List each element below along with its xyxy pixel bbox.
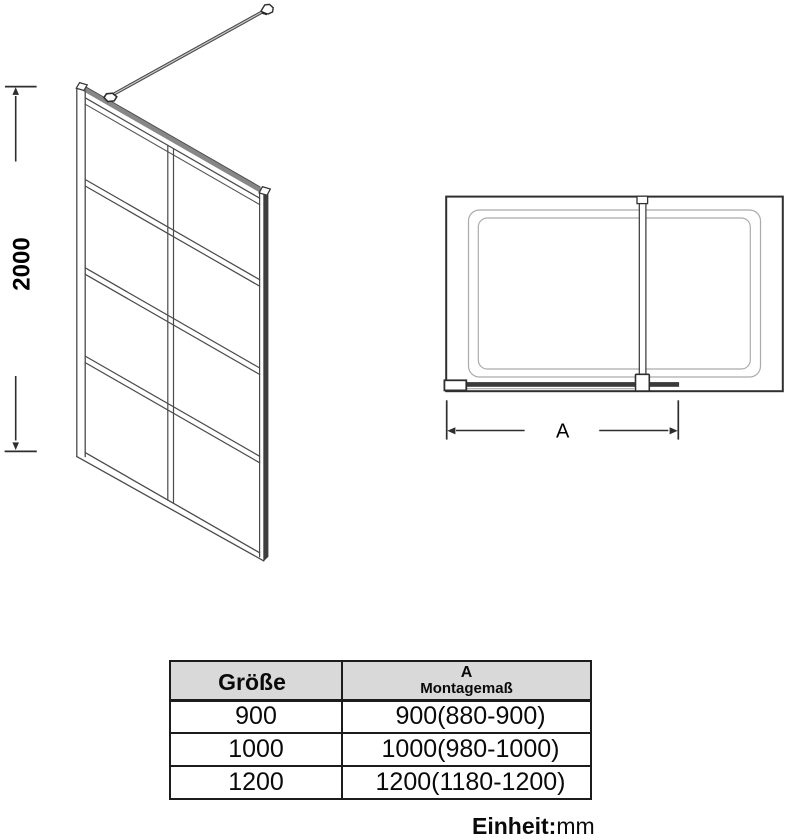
svg-text:2000: 2000 <box>9 237 36 290</box>
svg-text:A: A <box>556 421 570 443</box>
